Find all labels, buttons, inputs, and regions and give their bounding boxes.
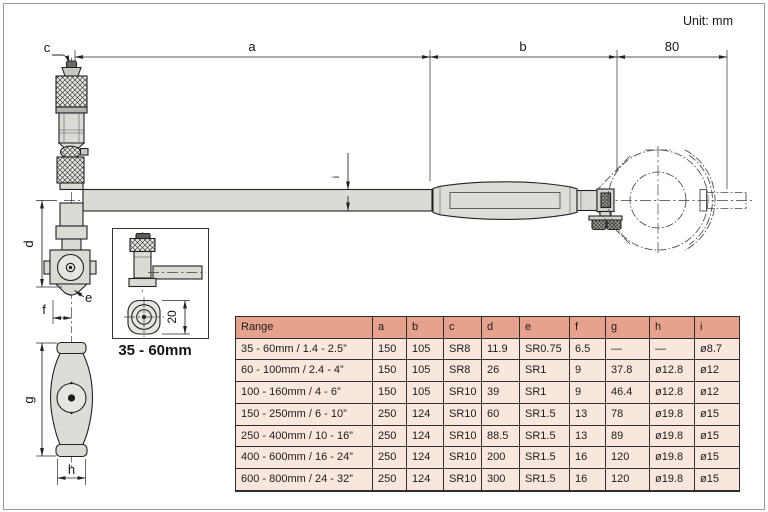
table-cell: SR10 <box>444 447 482 469</box>
dim-label-a: a <box>248 39 256 54</box>
table-cell: ø19.8 <box>650 447 695 469</box>
grip-detail-view <box>51 336 93 470</box>
table-cell: ø15 <box>695 468 740 490</box>
table-cell: 200 <box>482 447 520 469</box>
table-cell: 600 - 800mm / 24 - 32” <box>236 468 373 490</box>
table-cell: SR0.75 <box>520 338 570 360</box>
table-cell: 150 - 250mm / 6 - 10” <box>236 403 373 425</box>
table-cell: 124 <box>407 425 444 447</box>
table-cell: — <box>606 338 650 360</box>
table-cell: ø19.8 <box>650 425 695 447</box>
table-cell: 124 <box>407 468 444 490</box>
inset-detail-box: 20 <box>113 229 209 339</box>
spec-table-header: Rangeabcdefghi <box>236 317 740 339</box>
header-row: Rangeabcdefghi <box>236 317 740 339</box>
table-cell: 105 <box>407 382 444 404</box>
table-cell: 9 <box>570 382 606 404</box>
table-cell: SR1.5 <box>520 468 570 490</box>
table-cell: 13 <box>570 403 606 425</box>
table-row: 400 - 600mm / 16 - 24”250124SR10200SR1.5… <box>236 447 740 469</box>
table-cell: 124 <box>407 403 444 425</box>
table-row: 35 - 60mm / 1.4 - 2.5”150105SR811.9SR0.7… <box>236 338 740 360</box>
table-cell: SR8 <box>444 338 482 360</box>
dim-label-b: b <box>519 39 526 54</box>
contact-point-icon <box>67 61 77 68</box>
table-cell: 300 <box>482 468 520 490</box>
clamp-screw-icon <box>61 146 81 158</box>
table-cell: — <box>650 338 695 360</box>
header-cell: d <box>482 317 520 339</box>
table-row: 150 - 250mm / 6 - 10”250124SR1060SR1.513… <box>236 403 740 425</box>
dim-label-h: h <box>68 462 75 477</box>
table-cell: 88.5 <box>482 425 520 447</box>
top-dimension-chain: a b 80 <box>75 39 727 189</box>
table-cell: 37.8 <box>606 360 650 382</box>
table-cell: 150 <box>373 360 407 382</box>
table-cell: 150 <box>373 338 407 360</box>
table-cell: 6.5 <box>570 338 606 360</box>
table-cell: 124 <box>407 447 444 469</box>
unit-label: Unit: mm <box>683 14 733 28</box>
table-cell: SR1.5 <box>520 425 570 447</box>
table-row: 100 - 160mm / 4 - 6”150105SR1039SR1946.4… <box>236 382 740 404</box>
header-cell: b <box>407 317 444 339</box>
spec-table: Rangeabcdefghi 35 - 60mm / 1.4 - 2.5”150… <box>235 316 740 492</box>
clamp-nut-icon <box>592 220 606 230</box>
table-cell: SR8 <box>444 360 482 382</box>
header-cell: f <box>570 317 606 339</box>
dim-label-20: 20 <box>165 310 179 324</box>
catalog-page: { "unit_label": "Unit: mm", "drawing": {… <box>0 0 768 512</box>
table-cell: ø15 <box>695 403 740 425</box>
table-cell: ø19.8 <box>650 468 695 490</box>
header-cell: c <box>444 317 482 339</box>
table-cell: SR10 <box>444 382 482 404</box>
spec-table-body: 35 - 60mm / 1.4 - 2.5”150105SR811.9SR0.7… <box>236 338 740 490</box>
table-cell: ø12.8 <box>650 360 695 382</box>
table-cell: 105 <box>407 338 444 360</box>
dim-label-f: f <box>42 302 46 317</box>
table-cell: 60 - 100mm / 2.4 - 4” <box>236 360 373 382</box>
table-cell: ø15 <box>695 447 740 469</box>
table-cell: 250 <box>373 447 407 469</box>
table-cell: 11.9 <box>482 338 520 360</box>
table-cell: 9 <box>570 360 606 382</box>
table-row: 600 - 800mm / 24 - 32”250124SR10300SR1.5… <box>236 468 740 490</box>
table-cell: SR1 <box>520 360 570 382</box>
table-cell: SR1 <box>520 382 570 404</box>
header-cell: i <box>695 317 740 339</box>
dim-f: f <box>42 300 71 324</box>
gauge-rod <box>83 190 432 212</box>
dim-label-d: d <box>21 240 36 247</box>
table-cell: 16 <box>570 447 606 469</box>
table-cell: 16 <box>570 468 606 490</box>
table-cell: 13 <box>570 425 606 447</box>
table-cell: 150 <box>373 382 407 404</box>
table-cell: ø12.8 <box>650 382 695 404</box>
table-cell: 250 <box>373 468 407 490</box>
table-cell: ø12 <box>695 382 740 404</box>
dim-e: e <box>75 290 93 305</box>
dim-label-e: e <box>85 290 92 305</box>
dim-label-c: c <box>44 40 51 55</box>
table-cell: 60 <box>482 403 520 425</box>
dim-label-i: i <box>331 176 342 178</box>
table-cell: ø19.8 <box>650 403 695 425</box>
table-cell: 100 - 160mm / 4 - 6” <box>236 382 373 404</box>
table-cell: ø8.7 <box>695 338 740 360</box>
table-cell: 78 <box>606 403 650 425</box>
inset-caption: 35 - 60mm <box>118 342 191 359</box>
table-cell: 26 <box>482 360 520 382</box>
table-cell: 250 - 400mm / 10 - 16” <box>236 425 373 447</box>
table-cell: ø12 <box>695 360 740 382</box>
dim-label-g: g <box>21 396 36 403</box>
table-cell: 250 <box>373 403 407 425</box>
main-grip <box>433 182 577 220</box>
table-cell: 120 <box>606 468 650 490</box>
table-row: 250 - 400mm / 10 - 16”250124SR1088.5SR1.… <box>236 425 740 447</box>
dim-c: c <box>44 40 70 64</box>
knurled-clamp <box>56 76 87 107</box>
header-cell: Range <box>236 317 373 339</box>
dim-h: h <box>58 459 86 485</box>
table-cell: 35 - 60mm / 1.4 - 2.5” <box>236 338 373 360</box>
table-cell: 400 - 600mm / 16 - 24” <box>236 447 373 469</box>
header-cell: a <box>373 317 407 339</box>
table-cell: 105 <box>407 360 444 382</box>
table-cell: ø15 <box>695 425 740 447</box>
table-cell: SR10 <box>444 468 482 490</box>
spec-table-container: Rangeabcdefghi 35 - 60mm / 1.4 - 2.5”150… <box>235 316 740 492</box>
header-cell: e <box>520 317 570 339</box>
table-cell: SR10 <box>444 403 482 425</box>
table-cell: 46.4 <box>606 382 650 404</box>
indicator-clamp <box>577 189 622 230</box>
table-cell: 120 <box>606 447 650 469</box>
table-cell: SR1.5 <box>520 447 570 469</box>
table-cell: SR1.5 <box>520 403 570 425</box>
header-cell: g <box>606 317 650 339</box>
dim-label-80: 80 <box>665 39 679 54</box>
table-cell: SR10 <box>444 425 482 447</box>
table-cell: 89 <box>606 425 650 447</box>
clamp-nut-icon <box>607 220 621 230</box>
table-cell: 250 <box>373 425 407 447</box>
table-cell: 39 <box>482 382 520 404</box>
table-row: 60 - 100mm / 2.4 - 4”150105SR826SR1937.8… <box>236 360 740 382</box>
header-cell: h <box>650 317 695 339</box>
